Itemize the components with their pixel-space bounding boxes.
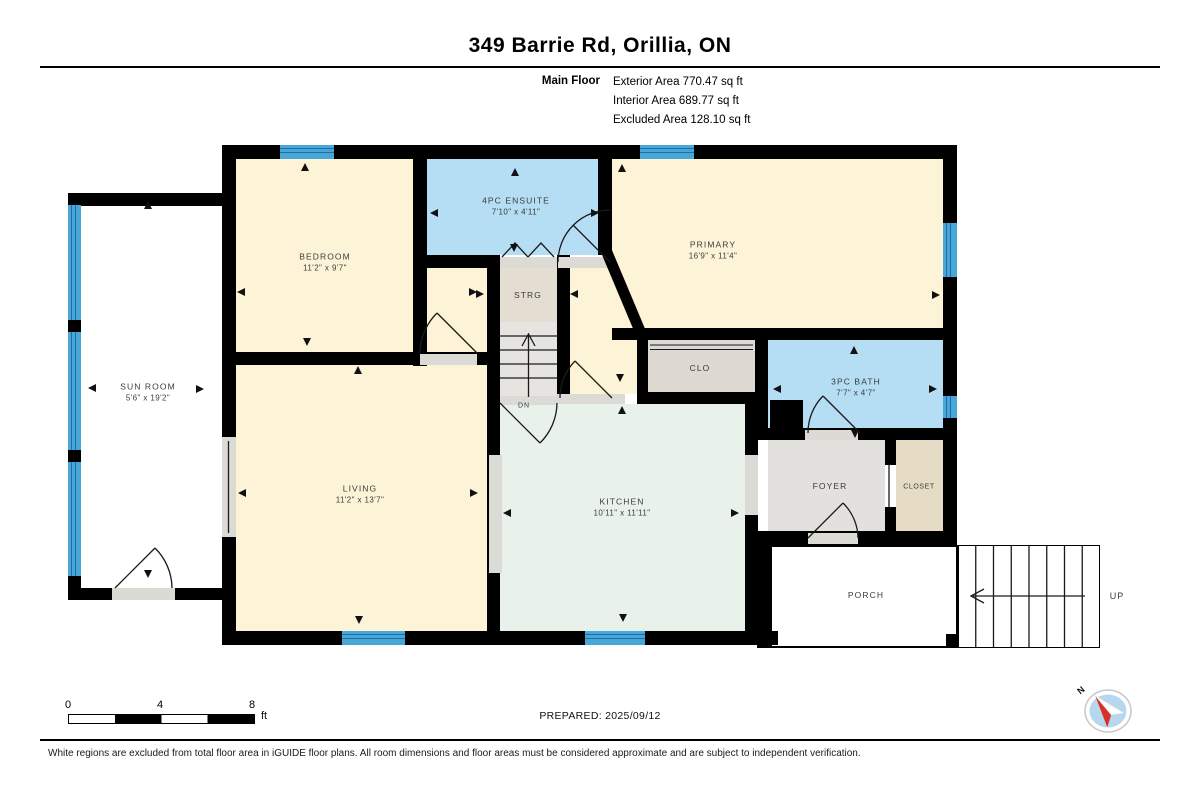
window	[68, 332, 81, 450]
door-arc	[155, 548, 172, 588]
floor-plan-page: 349 Barrie Rd, Orillia, ON Main Floor Ex…	[0, 0, 1200, 805]
dimension-arrow	[932, 291, 940, 299]
dimension-arrow	[144, 570, 152, 578]
dimension-arrow	[616, 374, 624, 382]
wall	[222, 145, 236, 437]
dimension-arrow	[303, 338, 311, 346]
wall	[946, 634, 958, 648]
stairs-up-label: UP	[1110, 591, 1125, 601]
dimension-arrow	[511, 168, 519, 176]
window	[640, 145, 694, 159]
window	[68, 462, 81, 576]
dimension-arrow	[354, 366, 362, 374]
room-name: 3PC BATH	[831, 377, 881, 387]
dimension-arrow	[430, 209, 438, 217]
room-name: PORCH	[848, 590, 884, 600]
wall	[598, 159, 612, 255]
dimension-arrow	[618, 164, 626, 172]
dimension-arrow	[618, 406, 626, 414]
window	[943, 396, 957, 418]
wall	[757, 545, 770, 648]
door-opening	[745, 455, 758, 515]
room-name: 4PC ENSUITE	[482, 196, 550, 206]
dimension-arrow	[851, 430, 859, 438]
dimension-arrow	[503, 509, 511, 517]
door-opening	[222, 437, 236, 537]
dimension-arrow	[929, 385, 937, 393]
room-label-porch: PORCH	[848, 590, 884, 600]
room-label-kitchen: KITCHEN 10'11" x 11'11"	[594, 497, 651, 518]
door-opening	[420, 354, 477, 365]
room-name: CLO	[690, 363, 711, 373]
door-leaf	[115, 548, 155, 588]
dimension-arrow	[850, 346, 858, 354]
room-name: CLOSET	[903, 484, 935, 491]
door-opening	[500, 257, 557, 268]
dimension-arrow	[144, 201, 152, 209]
room-dims: 5'6" x 19'2"	[120, 394, 176, 403]
wall	[222, 537, 236, 645]
window	[943, 223, 957, 277]
room-name: STRG	[514, 290, 542, 300]
room-name: LIVING	[336, 484, 384, 494]
dimension-arrow	[510, 244, 518, 252]
room-label-bath: 3PC BATH 7'7" x 4'7"	[831, 377, 881, 398]
room-label-sunroom: SUN ROOM 5'6" x 19'2"	[120, 382, 176, 403]
dimension-arrow	[238, 489, 246, 497]
wall	[943, 145, 957, 545]
dimension-arrow	[301, 163, 309, 171]
room-label-strg: STRG	[514, 290, 542, 300]
dimension-arrow	[470, 489, 478, 497]
dimension-arrow	[773, 385, 781, 393]
disclaimer-text: White regions are excluded from total fl…	[48, 748, 861, 759]
wall	[885, 507, 896, 532]
dimension-arrow	[570, 290, 578, 298]
room-dims: 11'2" x 9'7"	[299, 264, 351, 273]
window	[585, 631, 645, 645]
door-opening	[558, 257, 612, 268]
room-bedroom-pocket	[427, 268, 487, 352]
room-label-primary: PRIMARY 16'9" x 11'4"	[689, 240, 737, 261]
room-label-clo: CLO	[690, 363, 711, 373]
interior-stairwell	[500, 322, 557, 403]
dimension-arrow	[88, 384, 96, 392]
exterior-stairs	[958, 545, 1100, 648]
room-label-closet: CLOSET	[903, 484, 935, 491]
dimension-arrow	[591, 209, 599, 217]
dimension-arrow	[196, 385, 204, 393]
wall	[770, 400, 803, 428]
wall	[885, 440, 896, 465]
room-dims: 7'7" x 4'7"	[831, 389, 881, 398]
wall	[222, 631, 778, 645]
room-name: PRIMARY	[689, 240, 737, 250]
room-label-living: LIVING 11'2" x 13'7"	[336, 484, 384, 505]
door-opening	[112, 588, 175, 600]
room-label-foyer: FOYER	[813, 481, 848, 491]
dimension-arrow	[237, 288, 245, 296]
room-name: KITCHEN	[594, 497, 651, 507]
wall	[557, 255, 570, 404]
sliding-door	[648, 342, 755, 351]
footer-rule	[40, 739, 1160, 741]
wall	[487, 255, 500, 631]
room-name: SUN ROOM	[120, 382, 176, 392]
compass-rose: N	[1070, 678, 1146, 742]
room-label-ensuite: 4PC ENSUITE 7'10" x 4'11"	[482, 196, 550, 217]
prepared-date: PREPARED: 2025/09/12	[0, 710, 1200, 722]
floor-plan: BEDROOM 11'2" x 9'7" 4PC ENSUITE 7'10" x…	[0, 0, 1200, 805]
window	[280, 145, 334, 159]
window	[68, 205, 81, 320]
door-opening	[808, 533, 858, 544]
door-opening	[489, 455, 502, 573]
room-label-bedroom: BEDROOM 11'2" x 9'7"	[299, 252, 351, 273]
stairs-dn-label: DN	[518, 403, 530, 410]
room-primary	[612, 159, 943, 328]
door-opening	[557, 394, 625, 404]
room-dims: 10'11" x 11'11"	[594, 509, 651, 518]
dimension-arrow	[355, 616, 363, 624]
room-dims: 16'9" x 11'4"	[689, 252, 737, 261]
room-dims: 7'10" x 4'11"	[482, 208, 550, 217]
room-name: BEDROOM	[299, 252, 351, 262]
window	[342, 631, 405, 645]
compass-north-label: N	[1075, 684, 1086, 696]
room-kitchen	[500, 404, 745, 631]
dimension-arrow	[476, 290, 484, 298]
room-dims: 11'2" x 13'7"	[336, 496, 384, 505]
dimension-arrow	[619, 614, 627, 622]
compass: N	[1070, 678, 1146, 742]
room-name: FOYER	[813, 481, 848, 491]
dimension-arrow	[731, 509, 739, 517]
wall	[612, 328, 957, 340]
